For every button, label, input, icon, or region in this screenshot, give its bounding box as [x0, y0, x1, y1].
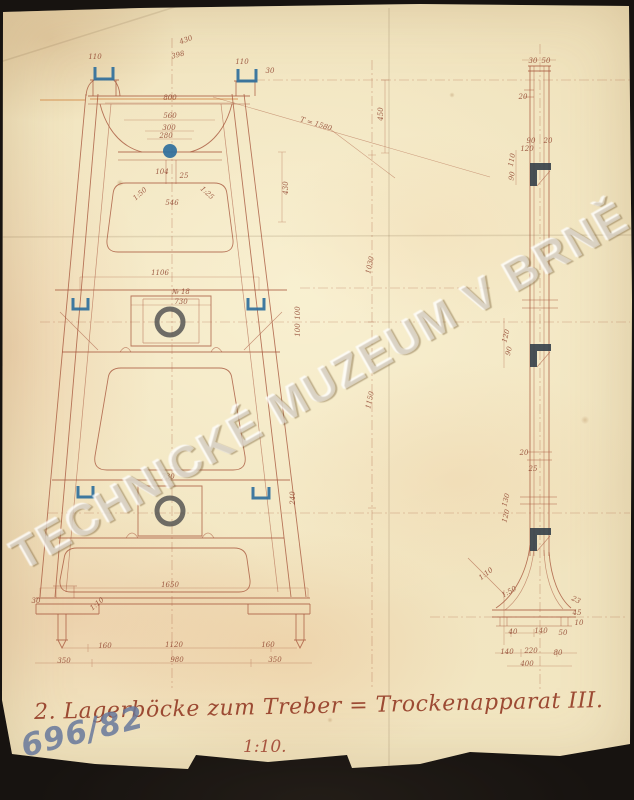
dimension-label: 45	[573, 609, 582, 617]
dimension-label: 110	[88, 53, 101, 61]
dimension-label: 980	[170, 656, 183, 664]
dimension-label: 20	[520, 449, 529, 457]
front-view	[36, 79, 310, 648]
dimension-label: 280	[159, 132, 172, 140]
dimension-label: 450	[377, 107, 385, 120]
dimension-label: 1120	[165, 641, 183, 649]
dimension-label: 80	[554, 649, 563, 657]
dimension-label: 1106	[151, 269, 169, 277]
dimension-label: 160	[98, 642, 111, 650]
dimension-label: 800	[163, 94, 176, 102]
dimension-label: № 18	[172, 288, 190, 296]
dimension-label: 40	[509, 628, 518, 636]
dimension-label: 300	[162, 124, 175, 132]
dimension-label: 120	[520, 145, 533, 153]
dimension-label: 25	[180, 172, 189, 180]
dimension-label: 350	[268, 656, 281, 664]
steel-brackets	[530, 163, 551, 551]
dimension-label: 220	[524, 647, 537, 655]
dimension-label: 90	[507, 171, 516, 181]
dimension-label: 1650	[161, 581, 179, 589]
dimension-label: 160	[261, 641, 274, 649]
dimension-label: 546	[165, 199, 178, 207]
dimension-label: 30	[32, 597, 41, 605]
dimension-label: 10	[575, 619, 584, 627]
dimension-label: 110	[235, 58, 248, 66]
dimension-label: 50	[559, 629, 568, 637]
dimension-label: 140	[500, 648, 513, 656]
u-channel-mark	[95, 67, 113, 79]
dimension-label: 100	[294, 323, 302, 336]
dimension-label: 240	[289, 491, 297, 504]
dimension-label: 560	[163, 112, 176, 120]
dimension-label: 400	[520, 660, 533, 668]
dimension-label: 100	[294, 306, 302, 319]
blue-dot-marker	[163, 144, 177, 158]
dimension-label: 50	[542, 57, 551, 65]
dimension-label: 350	[57, 657, 70, 665]
dimension-label: 20	[519, 93, 528, 101]
photo-background: { "document": { "caption": "2. Lagerböck…	[0, 0, 634, 800]
dimension-label: 90	[527, 137, 536, 145]
dimension-label: 20	[544, 137, 553, 145]
dimension-label: 730	[174, 298, 187, 306]
dimension-label: 430	[282, 181, 290, 194]
dimension-label: 140	[534, 627, 547, 635]
u-channel-mark	[238, 69, 256, 81]
drawing-sheet: 43039811011030800560300280T = 1580450104…	[0, 0, 634, 772]
scale-note: 1:10.	[243, 737, 287, 757]
dimension-label: 30	[529, 57, 538, 65]
dimension-label: 25	[529, 465, 538, 473]
dimension-label: 30	[266, 67, 275, 75]
dimension-label: 104	[155, 168, 168, 176]
